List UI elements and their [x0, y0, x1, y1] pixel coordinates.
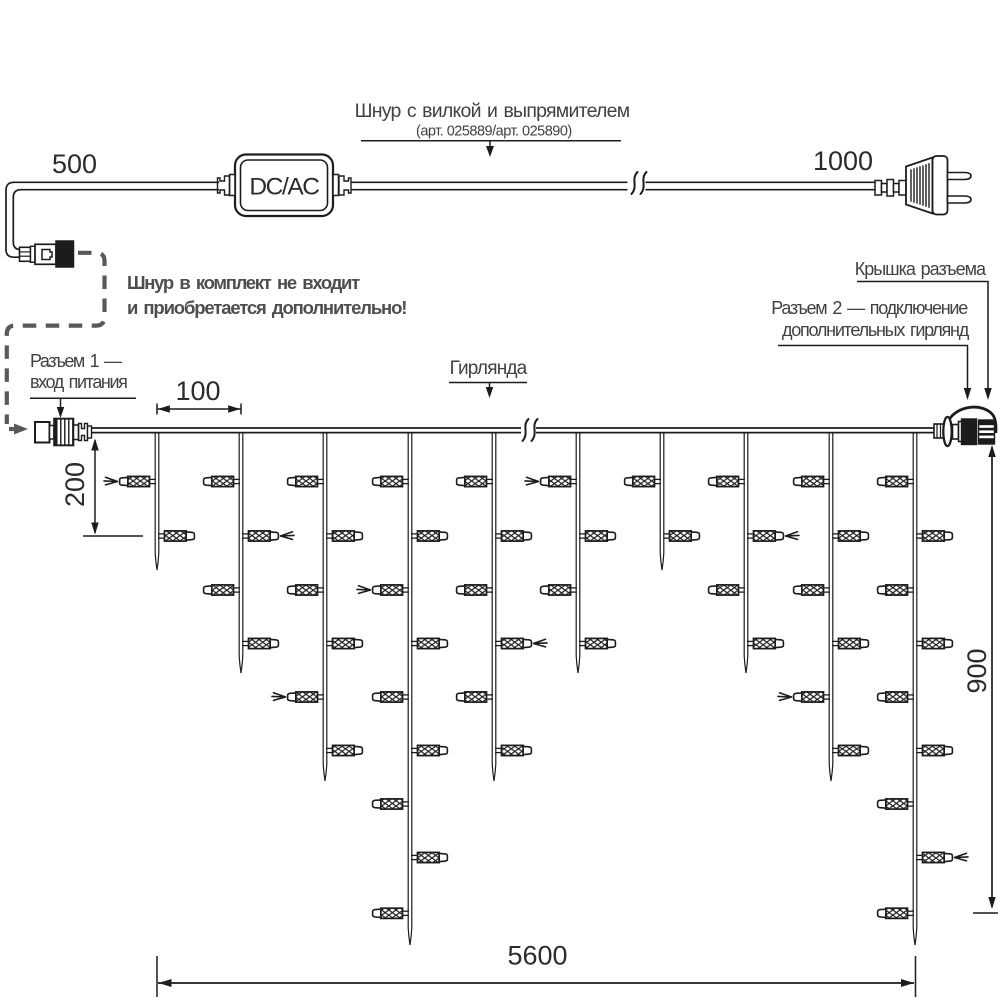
svg-text:дополнительных гирлянд: дополнительных гирлянд	[782, 320, 970, 340]
svg-text:DC/AC: DC/AC	[249, 174, 319, 201]
svg-text:(арт. 025889/арт. 025890): (арт. 025889/арт. 025890)	[416, 124, 572, 140]
svg-text:Крышка разъема: Крышка разъема	[855, 259, 987, 279]
svg-text:1000: 1000	[813, 146, 873, 176]
svg-text:200: 200	[60, 462, 90, 507]
svg-text:Шнур в комплект не входит: Шнур в комплект не входит	[127, 272, 360, 293]
svg-text:Разъем 2 — подключение: Разъем 2 — подключение	[771, 298, 968, 318]
svg-text:вход питания: вход питания	[30, 372, 127, 392]
svg-text:Шнур с вилкой и выпрямителем: Шнур с вилкой и выпрямителем	[355, 100, 630, 122]
svg-text:900: 900	[962, 648, 992, 693]
svg-text:100: 100	[175, 376, 220, 406]
svg-text:Разъем 1 —: Разъем 1 —	[30, 351, 122, 371]
svg-text:Гирлянда: Гирлянда	[450, 358, 528, 379]
svg-text:500: 500	[52, 149, 97, 179]
svg-text:и приобретается дополнительно!: и приобретается дополнительно!	[127, 297, 406, 318]
svg-text:5600: 5600	[507, 941, 567, 971]
